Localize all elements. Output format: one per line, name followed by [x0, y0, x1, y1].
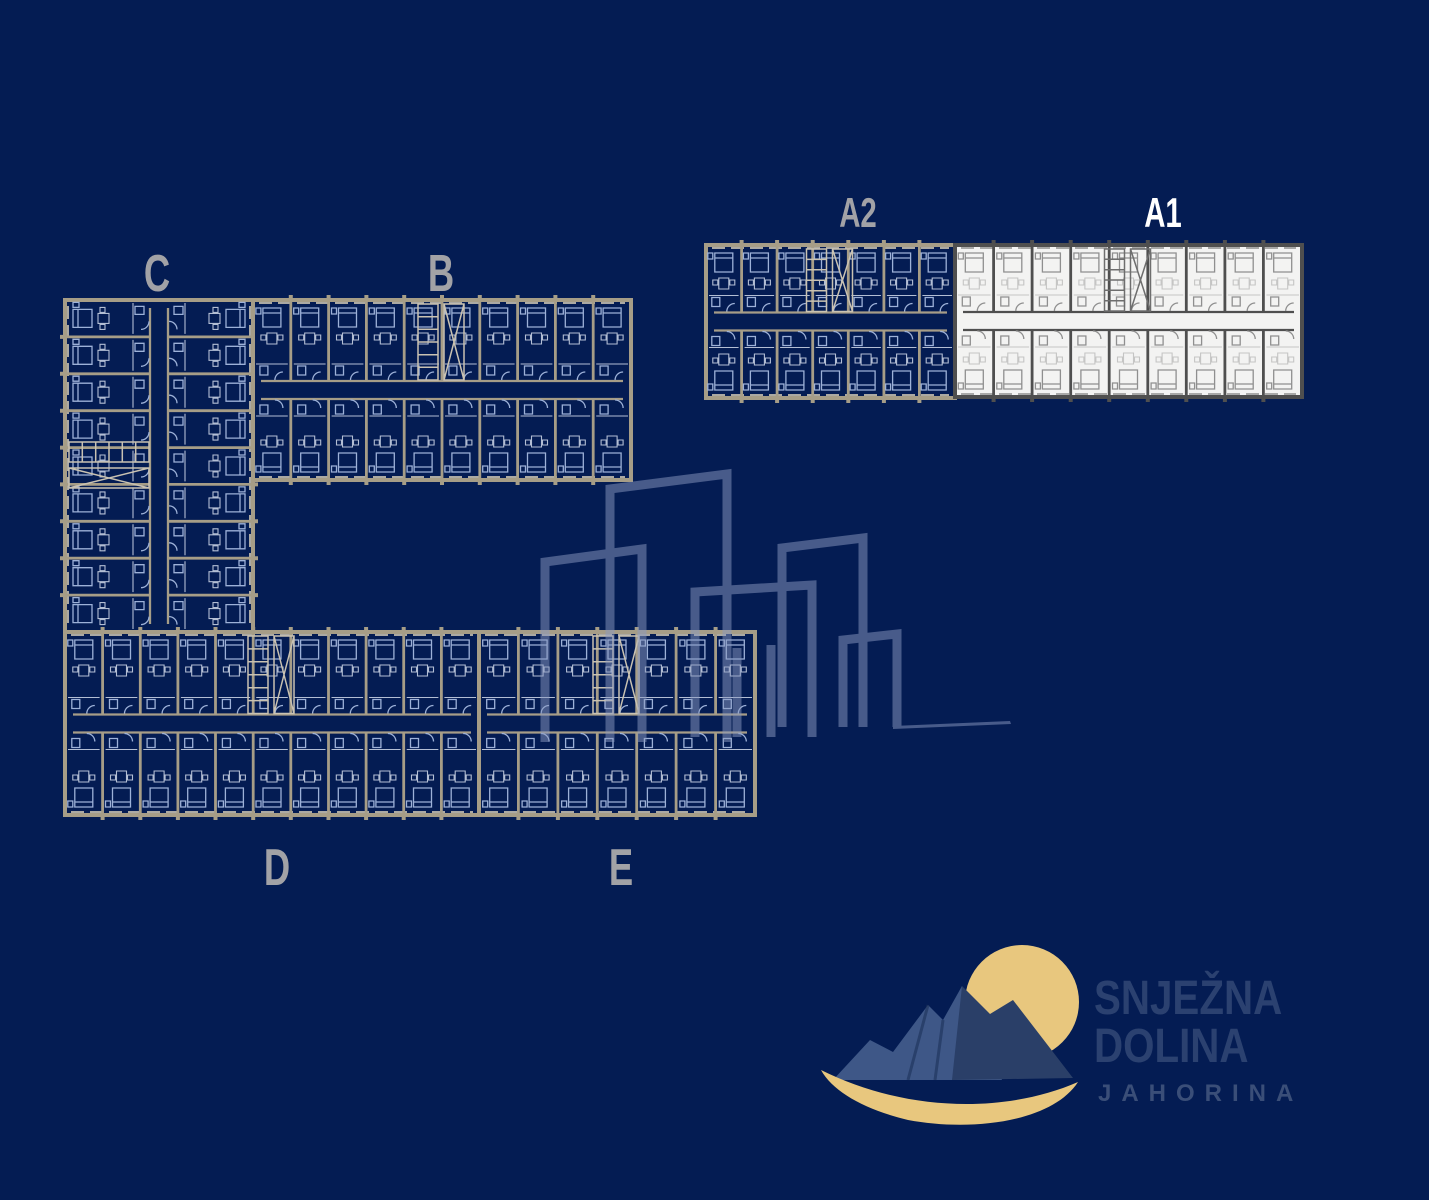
block-c[interactable]: [65, 300, 253, 632]
block-label-a1: A1: [1107, 192, 1219, 234]
block-a1[interactable]: [955, 245, 1302, 397]
floorplan-page: C B A2 A1 D E SNJEŽNA DOLINA JAHORINA: [0, 0, 1429, 1200]
block-label-d: D: [221, 842, 333, 894]
block-d[interactable]: [65, 632, 479, 815]
block-label-e: E: [565, 842, 677, 894]
logo-brand-line1: SNJEŽNA: [1094, 971, 1282, 1026]
mountain-sun-logo-icon: [821, 945, 1079, 1125]
block-e[interactable]: [479, 632, 755, 815]
block-a2[interactable]: [706, 245, 955, 398]
logo-brand-line3: JAHORINA: [1098, 1080, 1303, 1108]
block-label-b: B: [385, 248, 497, 300]
block-b[interactable]: [253, 300, 631, 480]
block-label-c: C: [101, 248, 213, 300]
block-label-a2: A2: [802, 192, 914, 234]
logo-brand-line2: DOLINA: [1094, 1019, 1249, 1074]
